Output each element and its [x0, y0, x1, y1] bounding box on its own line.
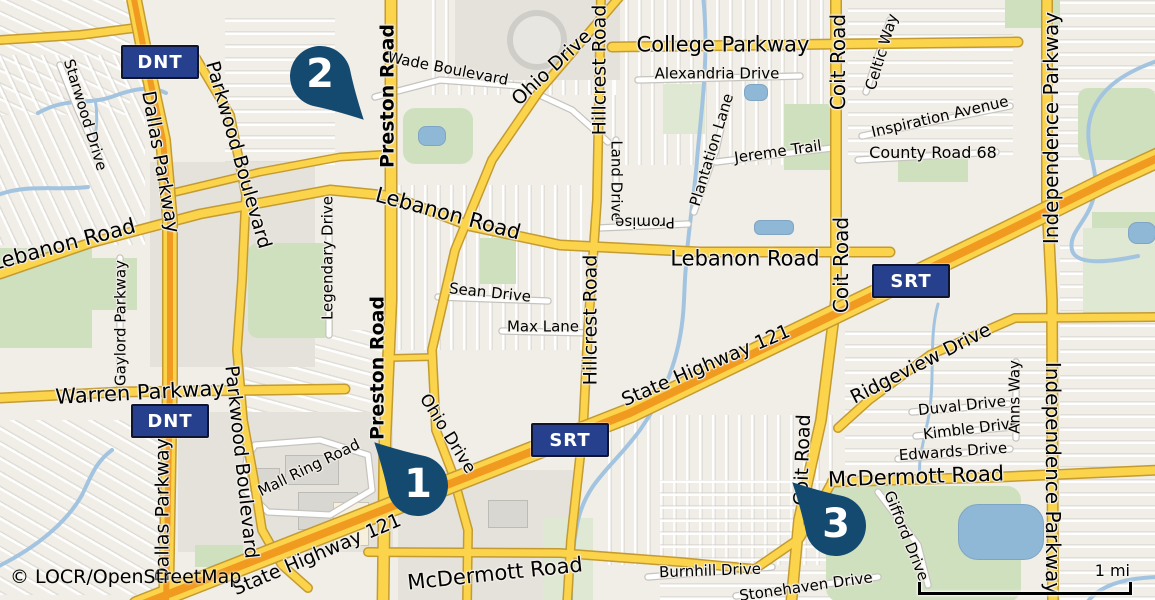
road-label-hillcrest-road: Hillcrest Road — [582, 255, 601, 386]
scale-label: 1 mi — [1095, 561, 1130, 580]
road-label-max-lane: Max Lane — [507, 320, 579, 335]
road-label-county-road-68: County Road 68 — [869, 145, 997, 161]
road-label-promise: Promise — [615, 215, 675, 230]
scale-line — [918, 592, 1132, 595]
road-label-dallas-parkway: Dallas Parkway — [154, 438, 173, 582]
copyright-attribution: © LOCR/OpenStreetMap — [10, 566, 241, 588]
highway-shield-srt: SRT — [872, 264, 950, 298]
road-label-lebanon-road: Lebanon Road — [670, 249, 819, 270]
highway-shield-srt: SRT — [531, 423, 609, 457]
road-label-legendary-drive: Legendary Drive — [321, 196, 336, 320]
road-label-independence-parkway: Independence Parkway — [1041, 12, 1061, 244]
marker-number: 3 — [822, 501, 850, 547]
creek — [0, 187, 88, 196]
road-label-coit-road: Coit Road — [831, 217, 851, 313]
road-label-anns-way: Anns Way — [1008, 360, 1023, 434]
map-canvas: Dallas ParkwayDallas ParkwayStarwood Dri… — [0, 0, 1155, 600]
marker-number: 1 — [404, 461, 432, 507]
road-label-hillcrest-road: Hillcrest Road — [591, 5, 610, 136]
road-label-burnhill-drive: Burnhill Drive — [659, 562, 761, 581]
highway-shield-dnt: DNT — [131, 404, 209, 438]
marker-number: 2 — [306, 51, 334, 97]
scale-bar: 1 mi — [918, 563, 1132, 595]
minor-road — [375, 80, 608, 142]
road-label-independence-parkway: Independence Parkway — [1043, 362, 1063, 594]
highway-shield-dnt: DNT — [121, 45, 199, 79]
road-label-alexandria-drive: Alexandria Drive — [655, 67, 780, 82]
scale-tick-right — [1129, 582, 1132, 595]
scale-tick-left — [918, 582, 921, 595]
map-marker-1[interactable]: 1 — [372, 440, 448, 516]
major-road — [391, 357, 433, 358]
road-label-gaylord-parkway: Gaylord Parkway — [114, 260, 129, 386]
map-marker-3[interactable]: 3 — [790, 480, 866, 556]
creek — [0, 450, 112, 568]
road-label-preston-road: Preston Road — [369, 296, 388, 440]
road-label-land-drive: Land Drive — [609, 140, 624, 221]
road-label-coit-road: Coit Road — [828, 14, 848, 110]
road-label-preston-road: Preston Road — [379, 24, 398, 168]
road-label-college-parkway: College Parkway — [637, 35, 810, 56]
map-marker-2[interactable]: 2 — [290, 46, 366, 122]
